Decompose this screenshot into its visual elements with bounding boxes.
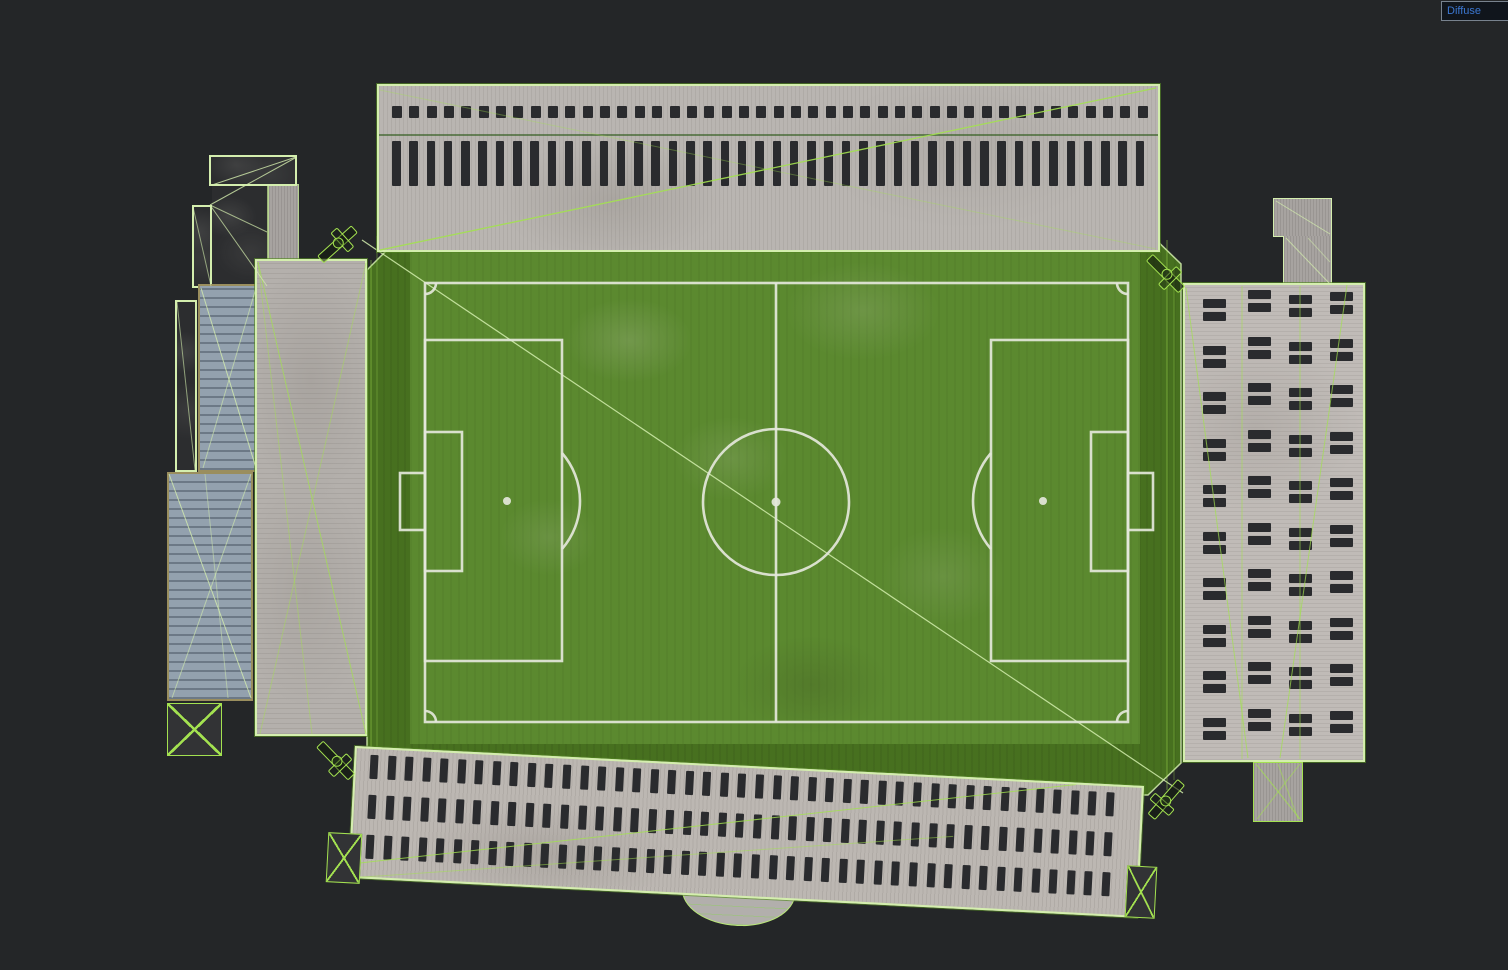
window [1248,569,1271,578]
window [496,141,505,186]
window [1289,634,1312,643]
window [506,842,515,866]
window [1289,435,1312,444]
window-pair [1330,339,1353,365]
window [928,823,937,847]
window [1084,871,1093,895]
window-pair [1289,435,1312,461]
window [457,759,466,783]
window [926,863,935,887]
window [1031,868,1040,892]
window [773,141,782,186]
window [367,795,376,819]
north-stand-divider [379,134,1158,136]
window [893,821,902,845]
window [737,773,746,797]
window [1203,299,1226,308]
window-pair [1248,337,1271,363]
window [913,782,922,806]
window [948,784,957,808]
window [634,141,643,186]
window [860,106,870,118]
window [685,771,694,795]
window [583,106,593,118]
window [444,141,453,186]
window [843,779,852,803]
window [856,860,865,884]
window [435,838,444,862]
window [681,851,690,875]
window [558,844,567,868]
window [453,839,462,863]
window [387,756,396,780]
window [981,826,990,850]
window [392,141,401,186]
window-pair [1289,528,1312,554]
window-pair [1330,478,1353,504]
west-grandstand[interactable] [255,259,367,736]
window [1203,545,1226,554]
window-pair [1330,432,1353,458]
window [878,781,887,805]
window [565,106,575,118]
window [385,796,394,820]
window [791,106,801,118]
window-pair [1289,621,1312,647]
east-tower-top[interactable] [1273,198,1332,237]
window [860,780,869,804]
window [1330,385,1353,394]
window [1330,664,1353,673]
east-stand-extension[interactable] [1253,762,1303,822]
window-pair [1248,569,1271,595]
window [1330,432,1353,441]
window [982,106,992,118]
window [1203,392,1226,401]
window-pair [1330,664,1353,690]
window-pair [1203,625,1226,651]
window-pair [1203,578,1226,604]
window [600,106,610,118]
window-pair [1203,532,1226,558]
window [1068,830,1077,854]
window [1330,711,1353,720]
window [670,106,680,118]
window [1033,828,1042,852]
window [1330,584,1353,593]
east-grandstand[interactable] [1183,283,1365,762]
window [437,798,446,822]
window-pair [1203,392,1226,418]
window [1248,709,1271,718]
window [1330,571,1353,580]
window [635,106,645,118]
window-pair [1248,616,1271,642]
window [909,862,918,886]
window [1203,731,1226,740]
window [409,141,418,186]
window [409,106,419,118]
window [805,817,814,841]
window [1086,831,1095,855]
south-service-block-east[interactable] [1125,865,1158,918]
window [946,824,955,848]
window [930,783,939,807]
window [1035,789,1044,813]
window [669,141,678,186]
window [1066,870,1075,894]
viewport[interactable]: { "viewport": { "shading_label": "Diffus… [0,0,1508,970]
window [1330,631,1353,640]
window [911,822,920,846]
window [488,841,497,865]
window [1289,481,1312,490]
window [1289,574,1312,583]
window [1330,677,1353,686]
window [1103,832,1112,856]
window [876,141,885,186]
window [1289,295,1312,304]
pitch-grass[interactable] [410,252,1140,744]
window [1330,305,1353,314]
window-pair [1203,299,1226,325]
window-pair [1289,481,1312,507]
west-stand-roof-upper[interactable] [198,284,258,472]
window [663,850,672,874]
window [513,106,523,118]
window [617,141,626,186]
window [1289,587,1312,596]
window [472,800,481,824]
window [1203,532,1226,541]
window [753,814,762,838]
window [369,755,378,779]
window [1248,303,1271,312]
window [1203,671,1226,680]
window [541,844,550,868]
window [700,812,709,836]
window [615,767,624,791]
floodlight-northeast[interactable] [1140,248,1194,302]
window [1289,494,1312,503]
northwest-roof-block-top[interactable] [209,155,297,186]
window [548,106,558,118]
window [947,106,957,118]
window-pair [1203,671,1226,697]
window [1289,308,1312,317]
window [774,106,784,118]
window-pair [1248,523,1271,549]
window [1015,141,1024,186]
window [840,819,849,843]
window [876,820,885,844]
window [964,106,974,118]
window [1289,727,1312,736]
window [650,769,659,793]
window-pair [1203,485,1226,511]
window [928,141,937,186]
window [383,836,392,860]
window [997,141,1006,186]
window [562,765,571,789]
window [825,778,834,802]
window [1101,141,1110,186]
window-pair [1289,388,1312,414]
window [508,802,517,826]
window [1101,872,1110,896]
window [1248,337,1271,346]
window [444,106,454,118]
west-walkway-roof[interactable] [268,184,299,261]
window [735,813,744,837]
window [496,106,506,118]
window [1330,339,1353,348]
window [1103,106,1113,118]
window [843,106,853,118]
window [912,106,922,118]
viewport-shading-label[interactable]: Diffuse [1441,1,1508,21]
window [1330,445,1353,454]
window-pair [1248,709,1271,735]
window [652,106,662,118]
window [628,848,637,872]
window [1248,675,1271,684]
window [365,835,374,859]
window [790,141,799,186]
window [580,765,589,789]
window [686,141,695,186]
window [1289,541,1312,550]
window [530,141,539,186]
window [895,106,905,118]
window [1034,106,1044,118]
window [1330,525,1353,534]
window [720,773,729,797]
grass-apron[interactable] [355,232,1185,795]
west-roof-strip[interactable] [175,300,197,472]
window [756,106,766,118]
window [648,809,657,833]
window [698,852,707,876]
window-pair [1248,476,1271,502]
window [545,764,554,788]
window [687,106,697,118]
window [1248,476,1271,485]
window [651,141,660,186]
window [1084,141,1093,186]
window [1248,443,1271,452]
window [1248,383,1271,392]
window [1248,722,1271,731]
window [1203,498,1226,507]
window [824,141,833,186]
window [439,758,448,782]
window [1105,792,1114,816]
window [470,840,479,864]
window [548,141,557,186]
window [703,141,712,186]
window [478,141,487,186]
window [1067,141,1076,186]
window [455,799,464,823]
window [1138,106,1148,118]
window [595,806,604,830]
window [894,141,903,186]
window [1203,359,1226,368]
floodlight-southeast[interactable] [1138,774,1192,828]
window [983,786,992,810]
window [704,106,714,118]
window [523,843,532,867]
east-tower-base[interactable] [1283,236,1332,288]
window [683,811,692,835]
window [803,857,812,881]
window [1068,106,1078,118]
window [1248,290,1271,299]
window-pair [1330,711,1353,737]
window [1203,346,1226,355]
window [510,762,519,786]
window [632,768,641,792]
window [751,854,760,878]
window [582,141,591,186]
window [560,805,569,829]
window [1120,106,1130,118]
window [755,774,764,798]
window [755,141,764,186]
south-service-block-west[interactable] [326,832,363,884]
window [513,141,522,186]
window [946,141,955,186]
window [874,860,883,884]
north-stand-vent-row [392,106,1150,118]
window [826,106,836,118]
window [611,847,620,871]
window [1289,680,1312,689]
window [1049,869,1058,893]
window-pair [1330,525,1353,551]
window [895,781,904,805]
window [525,803,534,827]
window [565,141,574,186]
window [1289,355,1312,364]
window [1248,536,1271,545]
window [788,816,797,840]
window [1289,388,1312,397]
window [630,808,639,832]
window [427,106,437,118]
west-service-block[interactable] [167,703,222,756]
window [1203,718,1226,727]
window [963,825,972,849]
window [1330,618,1353,627]
window [1203,625,1226,634]
window [402,797,411,821]
window [578,805,587,829]
window [807,141,816,186]
window [1248,396,1271,405]
window [790,776,799,800]
window [475,760,484,784]
window [531,106,541,118]
window [1203,578,1226,587]
window [1016,828,1025,852]
window [980,141,989,186]
window [1203,405,1226,414]
window [1118,141,1127,186]
window-pair [1248,662,1271,688]
window-pair [1203,346,1226,372]
window [1053,789,1062,813]
window [1248,523,1271,532]
window [1330,398,1353,407]
window [963,141,972,186]
window [1136,141,1145,186]
window [1330,478,1353,487]
window [1203,684,1226,693]
window-pair [1330,618,1353,644]
window [1248,350,1271,359]
window-pair [1289,667,1312,693]
northwest-roof-block-small[interactable] [192,205,212,288]
window [823,818,832,842]
window [768,855,777,879]
window [492,761,501,785]
window-pair [1289,574,1312,600]
window [739,106,749,118]
window-pair [1330,385,1353,411]
window [1203,452,1226,461]
window [722,106,732,118]
window [1049,141,1058,186]
window [842,141,851,186]
window [770,815,779,839]
window [1203,439,1226,448]
window-pair [1248,383,1271,409]
window [613,807,622,831]
window [858,820,867,844]
window-pair [1248,430,1271,456]
window [1330,538,1353,547]
window [1289,667,1312,676]
window [996,867,1005,891]
north-grandstand[interactable] [377,84,1160,252]
east-stand-windows [1185,285,1363,760]
window [702,772,711,796]
floodlight-southwest[interactable] [310,735,364,789]
window [1000,787,1009,811]
window [1330,724,1353,733]
window [1086,106,1096,118]
window [961,865,970,889]
window-pair [1248,290,1271,316]
window-pair [1203,718,1226,744]
north-stand-window-row [392,141,1150,186]
window [667,770,676,794]
window [718,813,727,837]
window [891,861,900,885]
west-stand-roof-lower[interactable] [167,472,253,701]
window [772,775,781,799]
window [576,845,585,869]
window [1289,714,1312,723]
floodlight-northwest[interactable] [312,216,366,270]
window [1088,791,1097,815]
window-pair [1203,439,1226,465]
window [420,797,429,821]
window [965,785,974,809]
window [461,141,470,186]
